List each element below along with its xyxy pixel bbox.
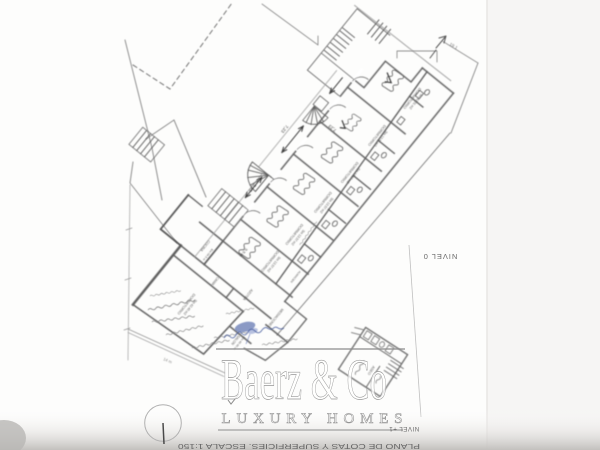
svg-text:NIVEL +1: NIVEL +1 <box>389 425 419 432</box>
svg-text:NIVEL 0: NIVEL 0 <box>423 252 458 261</box>
svg-text:PLANO DE COTAS Y SUPERFICIES.: PLANO DE COTAS Y SUPERFICIES. ESCALA 1:1… <box>178 442 420 450</box>
svg-text:Baerz & Co: Baerz & Co <box>221 347 387 412</box>
